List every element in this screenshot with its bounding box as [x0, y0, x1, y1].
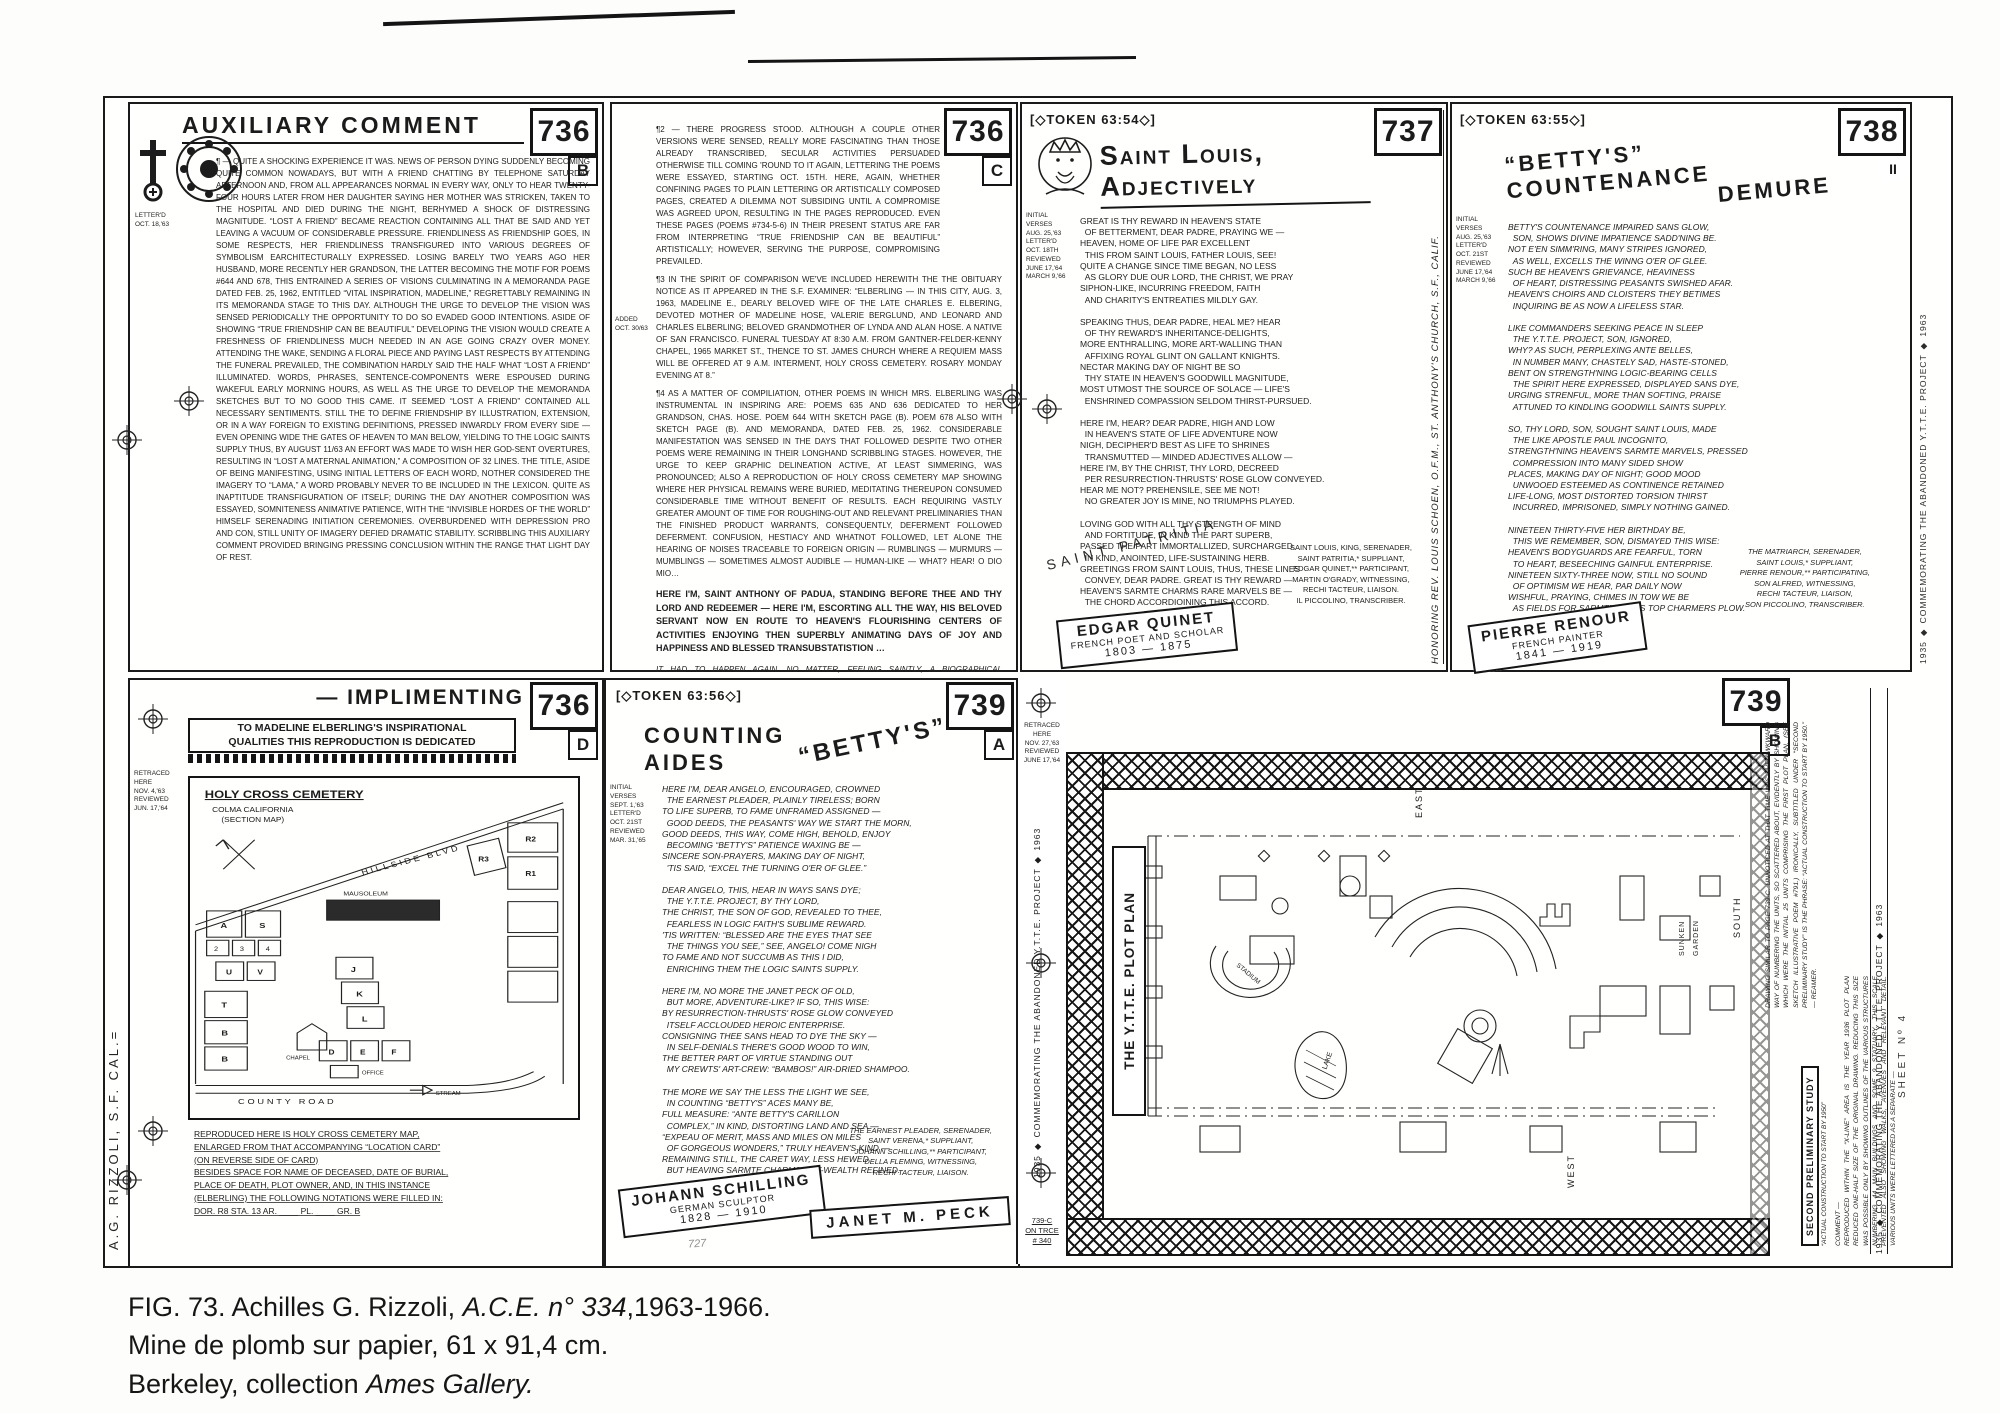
- panel-737: [◇TOKEN 63:54◇] Saint Louis, Adjectively…: [1020, 102, 1448, 672]
- caption-work-title: A.C.E. n° 334: [463, 1292, 627, 1322]
- panel-739a-poem: HERE I'M, DEAR ANGELO, ENCOURAGED, CROWN…: [662, 784, 992, 1177]
- panel-739a-token: [◇TOKEN 63:56◇]: [616, 688, 742, 704]
- section-label: K: [356, 989, 364, 998]
- plan-border-top: [1066, 752, 1770, 790]
- panel-737-margin-note: INITIAL VERSES AUG. 25,'63 LETTER'D OCT.…: [1026, 212, 1070, 282]
- section-label: S: [259, 921, 266, 930]
- section-label: E: [360, 1048, 366, 1056]
- strip-bottom-note: 739-C ON TRCE # 340: [1021, 1216, 1063, 1246]
- office-label: OFFICE: [362, 1071, 384, 1076]
- map-subtitle: COLMA CALIFORNIA: [212, 806, 294, 814]
- plan-structures: [1142, 836, 1740, 1152]
- strip-top-note: RETRACED HERE NOV. 27,'63 REVIEWED JUNE …: [1021, 722, 1063, 766]
- janet-peck-label: JANET M. PECK: [809, 1196, 1010, 1239]
- section-label: L: [362, 1014, 368, 1023]
- plan-border-left: [1066, 752, 1104, 1256]
- map-note: (SECTION MAP): [221, 816, 284, 824]
- panel-737-title: Saint Louis, Adjectively: [1099, 135, 1370, 209]
- figure-caption: FIG. 73. Achilles G. Rizzoli, A.C.E. n° …: [128, 1288, 771, 1403]
- dedication-banner: TO MADELINE ELBERLING'S INSPIRATIONAL QU…: [188, 718, 516, 753]
- section-label: 2: [214, 947, 218, 953]
- panel-738-margin-note: INITIAL VERSES AUG. 25,'63 LETTER'D OCT.…: [1456, 216, 1500, 286]
- study-sub: “ACTUAL CONSTRUCTION TO START BY 1950”: [1821, 976, 1828, 1246]
- mausoleum-label: MAUSOLEUM: [343, 891, 388, 897]
- section-label: A: [220, 921, 227, 930]
- edge-commemorating-strip-top: 1935 ◆ COMMEMORATING THE ABANDONED Y.T.T…: [1918, 106, 1928, 664]
- chapel-label: CHAPEL: [286, 1056, 310, 1061]
- scanned-artwork-page: A.G. RIZZOLI, S.F. CAL.= AUXILIARY COMME…: [0, 0, 2000, 1414]
- caption-line-2: Mine de plomb sur papier, 61 x 91,4 cm.: [128, 1326, 771, 1364]
- section-label: R2: [525, 835, 536, 843]
- panel-737-credits: SAINT LOUIS, KING, SERENADER, SAINT PATR…: [1290, 543, 1412, 606]
- section-label: U: [226, 968, 233, 976]
- stream-label: STREAM: [436, 1091, 461, 1096]
- plan-margin-note: DRAWING SIMILAR TO PAGE 739-C. UNNOTICED…: [1764, 722, 1819, 1008]
- sheet-number: SHEET Nº 4: [1897, 898, 1908, 1098]
- sunken-garden-label-1: SUNKEN: [1679, 921, 1686, 956]
- caption-line-1: FIG. 73. Achilles G. Rizzoli, A.C.E. n° …: [128, 1288, 771, 1326]
- label-name: JANET M. PECK: [826, 1203, 995, 1232]
- panel-736d-margin-note: RETRACED HERE NOV. 4,'63 REVIEWED JUN. 1…: [134, 770, 176, 814]
- commemorating-strip: RETRACED HERE NOV. 27,'63 REVIEWED JUNE …: [1016, 678, 1068, 1264]
- registration-mark-icon: [138, 704, 168, 734]
- panel-736b-margin-note: LETTER'D OCT. 18,'63: [135, 212, 179, 230]
- section-label: R1: [525, 870, 536, 878]
- edgar-quinet-label: EDGAR QUINET FRENCH POET AND SCHOLAR 180…: [1056, 602, 1239, 669]
- scan-artifact: [383, 10, 735, 26]
- study-label: SECOND PRELIMINARY STUDY: [1801, 1066, 1819, 1246]
- section-label: J: [351, 965, 356, 974]
- county-road-label: COUNTY ROAD: [238, 1097, 336, 1106]
- caption-text: Berkeley, collection: [128, 1369, 366, 1399]
- panel-736d-letter: D: [568, 730, 598, 760]
- plot-plan-title: THE Y.T.T.E. PLOT PLAN: [1122, 892, 1137, 1070]
- section-label: T: [221, 1000, 228, 1009]
- panel-736d-number: 736: [530, 682, 598, 730]
- road-label: HILLSIDE BLVD: [360, 843, 462, 877]
- registration-mark-icon: [997, 384, 1027, 414]
- registration-mark-icon: [1032, 394, 1062, 424]
- panel-738-token: [◇TOKEN 63:55◇]: [1460, 112, 1586, 128]
- panel-736c: 736 C ADDED OCT. 30/63 ¶2 — THERE PROGRE…: [610, 102, 1018, 672]
- paragraph-4: ¶4 AS A MATTER OF COMPILIATION, OTHER PO…: [656, 388, 1002, 580]
- panel-738-number: 738: [1838, 108, 1906, 156]
- section-label: B: [221, 1028, 228, 1037]
- stadium-label: STADIUM: [1235, 962, 1262, 986]
- cemetery-map-svg: HOLY CROSS CEMETERY COLMA CALIFORNIA (SE…: [190, 778, 578, 1118]
- east-label: EAST: [1414, 786, 1424, 818]
- pierre-renour-label: PIERRE RENOUR FRENCH PAINTER 1841 — 1919: [1467, 601, 1647, 674]
- panel-736d: — IMPLIMENTING 736 D TO MADELINE ELBERLI…: [128, 678, 604, 1268]
- section-label: B: [221, 1054, 228, 1063]
- plan-border-bottom: [1066, 1218, 1770, 1256]
- panel-736d-bottom-note: REPRODUCED HERE IS HOLY CROSS CEMETERY M…: [194, 1128, 562, 1217]
- honoring-inscription: HONORING REV. LOUIS SCHOEN, O.F.M., ST. …: [1430, 110, 1444, 664]
- panel-736d-title: — IMPLIMENTING: [316, 686, 524, 710]
- pencil-note: 727: [688, 1237, 707, 1250]
- caption-text: FIG. 73. Achilles G. Rizzoli,: [128, 1292, 463, 1322]
- caption-collection: Ames Gallery.: [366, 1369, 534, 1399]
- section-label: R3: [478, 855, 489, 863]
- plot-plan-title-box: THE Y.T.T.E. PLOT PLAN: [1112, 846, 1146, 1116]
- map-title: HOLY CROSS CEMETERY: [205, 788, 364, 801]
- registration-mark-icon: [112, 425, 142, 455]
- title-post: AIDES: [644, 750, 726, 775]
- panel-736b-body: ¶ — QUITE A SHOCKING EXPERIENCE IT WAS. …: [216, 156, 590, 662]
- south-label: SOUTH: [1732, 878, 1742, 938]
- paragraph-3: ¶3 IN THE SPIRIT OF COMPARISON WE'VE INC…: [656, 274, 1002, 382]
- map-structures: [196, 803, 564, 1095]
- lake-label: LAKE: [1322, 1051, 1335, 1071]
- registration-mark-icon: [112, 1165, 142, 1195]
- panel-736c-body: ¶2 — THERE PROGRESS STOOD. ALTHOUGH A CO…: [656, 124, 1002, 662]
- registration-mark-icon: [1026, 1158, 1056, 1188]
- registration-mark-icon: [138, 1116, 168, 1146]
- panel-738-ditto: II: [1880, 156, 1906, 182]
- king-portrait-icon: [1036, 130, 1094, 200]
- panel-737-token: [◇TOKEN 63:54◇]: [1030, 112, 1156, 128]
- cemetery-map: HOLY CROSS CEMETERY COLMA CALIFORNIA (SE…: [188, 776, 580, 1120]
- panel-736c-margin-note: ADDED OCT. 30/63: [615, 316, 653, 334]
- registration-mark-icon: [1026, 688, 1056, 718]
- caption-text: ,1963-1966.: [627, 1292, 771, 1322]
- panel-739a: [◇TOKEN 63:56◇] COUNTING “BETTY'S” AIDES…: [604, 678, 1020, 1268]
- saint-anthony-note: HERE I'M, SAINT ANTHONY OF PADUA, STANDI…: [656, 588, 1002, 656]
- section-label: 4: [266, 947, 270, 953]
- panel-736b: AUXILIARY COMMENT 736 B LETTER'D OCT. 18…: [128, 102, 604, 672]
- panel-739a-credits: THE EARNEST PLEADER, SERENADER, SAINT VE…: [849, 1126, 992, 1179]
- panel-739a-letter: A: [984, 730, 1014, 760]
- panel-736b-number: 736: [530, 108, 598, 156]
- panel-738-credits: THE MATRIARCH, SERENADER, SAINT LOUIS,* …: [1740, 547, 1870, 610]
- strip-vertical-text: 1935 ◆ COMMEMORATING THE ABANDONED Y.T.T…: [1032, 798, 1042, 1178]
- panel-739b: 739 B: [1064, 678, 1910, 1264]
- panel-739a-number: 739: [946, 682, 1014, 730]
- banner-ornament-band: [188, 754, 516, 763]
- section-label: D: [329, 1048, 336, 1056]
- panel-739a-title: COUNTING “BETTY'S” AIDES: [644, 722, 994, 776]
- johann-schilling-label: JOHANN SCHILLING GERMAN SCULPTOR 1828 — …: [618, 1165, 827, 1239]
- title-mid: “BETTY'S”: [796, 712, 950, 771]
- section-label: F: [391, 1048, 396, 1056]
- paragraph-2: ¶2 — THERE PROGRESS STOOD. ALTHOUGH A CO…: [656, 124, 1002, 268]
- plot-plan-svg: EAST NORTH WEST STADIUM LAKE SUNKEN GARD…: [1100, 786, 1750, 1218]
- panel-739b-number: 739: [1722, 678, 1790, 726]
- edge-commemorating-strip-bottom: 1935 ◆ COMMEMORATING THE ABANDONED Y.T.T…: [1870, 688, 1888, 1254]
- scan-artifact: [748, 56, 1136, 63]
- panel-738-title: “BETTY'S” COUNTENANCE DEMURE: [1503, 124, 1838, 226]
- registration-mark-icon: [1026, 948, 1056, 978]
- cross-icon: [138, 138, 168, 204]
- section-label: V: [257, 968, 264, 976]
- west-label: WEST: [1566, 1154, 1576, 1188]
- panel-738: [◇TOKEN 63:55◇] “BETTY'S” COUNTENANCE DE…: [1450, 102, 1912, 672]
- plan-comment: COMMENT — REPRODUCED WITHIN THE “X-LINE”…: [1834, 976, 1898, 1246]
- section-label: 3: [240, 947, 244, 953]
- title-pre: COUNTING: [644, 723, 785, 748]
- sunken-garden-label-2: GARDEN: [1693, 920, 1700, 956]
- panel-739a-margin-note: INITIAL VERSES SEPT. 1,'63 LETTER'D OCT.…: [610, 784, 654, 845]
- caption-line-3: Berkeley, collection Ames Gallery.: [128, 1365, 771, 1403]
- registration-mark-icon: [174, 386, 204, 416]
